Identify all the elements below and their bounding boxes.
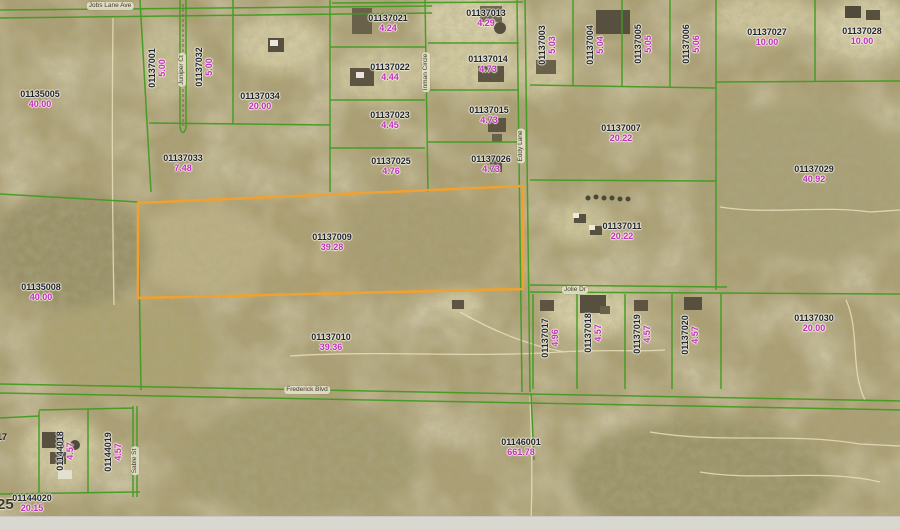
parcel-label-01137020[interactable]: 011370204.57 [681, 315, 701, 355]
parcel-acreage: 4.45 [370, 121, 410, 131]
parcel-label-01135008[interactable]: 0113500840.00 [21, 283, 61, 303]
road-label-juniper-ct: Juniper Ct [178, 53, 186, 87]
parcel-label-01144019[interactable]: 011440194.57 [104, 432, 124, 472]
parcel-label-01137033[interactable]: 011370337.48 [163, 154, 203, 174]
parcel-acreage: 40.00 [20, 100, 60, 110]
parcel-acreage: 4.44 [370, 73, 410, 83]
parcel-label-01137028[interactable]: 0113702810.00 [842, 27, 882, 47]
parcel-acreage: 4.57 [691, 315, 701, 355]
map-bottom-margin [0, 516, 900, 529]
parcel-label-01137019[interactable]: 011370194.57 [633, 314, 653, 354]
parcel-label-01146001[interactable]: 01146001661.78 [501, 438, 541, 458]
parcel-label-01137015[interactable]: 011370154.73 [469, 106, 509, 126]
parcel-acreage: 10.00 [747, 38, 787, 48]
parcel-acreage: 4.29 [466, 19, 506, 29]
parcel-label-01137022[interactable]: 011370224.44 [370, 63, 410, 83]
parcel-label-01135005[interactable]: 0113500540.00 [20, 90, 60, 110]
parcel-acreage: 10.00 [842, 37, 882, 47]
parcel-label-01137001[interactable]: 011370015.00 [148, 48, 168, 88]
parcel-label-01137007[interactable]: 0113700720.22 [601, 124, 641, 144]
parcel-label-01137004[interactable]: 011370045.04 [586, 25, 606, 65]
parcel-acreage: 40.00 [21, 293, 61, 303]
parcel-acreage: 5.00 [205, 47, 215, 87]
parcel-acreage: 20.22 [602, 232, 641, 242]
parcel-acreage: 5.06 [692, 24, 702, 64]
cutoff-parcel-label: 17 [0, 432, 7, 442]
parcel-label-01137003[interactable]: 011370035.03 [538, 25, 558, 65]
parcel-label-01137027[interactable]: 0113702710.00 [747, 28, 787, 48]
parcel-acreage: 4.76 [371, 167, 411, 177]
parcel-acreage: 20.15 [12, 504, 52, 514]
parcel-acreage: 4.96 [551, 318, 561, 358]
parcel-acreage: 4.73 [469, 116, 509, 126]
parcel-acreage: 4.57 [114, 432, 124, 472]
parcel-label-01137023[interactable]: 011370234.45 [370, 111, 410, 131]
parcel-acreage: 20.00 [794, 324, 834, 334]
parcel-acreage: 40.92 [794, 175, 834, 185]
parcel-labels-layer: 0113500540.00011370015.00011370325.00011… [0, 0, 900, 529]
parcel-label-01137018[interactable]: 011370184.57 [584, 313, 604, 353]
parcel-label-01137009[interactable]: 0113700939.28 [312, 233, 352, 253]
gis-map-view: 0113500540.00011370015.00011370325.00011… [0, 0, 900, 529]
parcel-acreage: 4.57 [594, 313, 604, 353]
parcel-acreage: 4.73 [468, 65, 508, 75]
parcel-acreage: 39.28 [312, 243, 352, 253]
parcel-label-01137013[interactable]: 011370134.29 [466, 9, 506, 29]
parcel-label-01137029[interactable]: 0113702940.92 [794, 165, 834, 185]
parcel-acreage: 5.00 [158, 48, 168, 88]
parcel-label-01137005[interactable]: 011370055.05 [634, 24, 654, 64]
parcel-acreage: 4.57 [643, 314, 653, 354]
parcel-label-01137030[interactable]: 0113703020.00 [794, 314, 834, 334]
parcel-label-01137014[interactable]: 011370144.73 [468, 55, 508, 75]
parcel-acreage: 4.73 [471, 165, 511, 175]
parcel-label-01137006[interactable]: 011370065.06 [682, 24, 702, 64]
parcel-acreage: 5.03 [548, 25, 558, 65]
parcel-label-01137010[interactable]: 0113701039.36 [311, 333, 351, 353]
parcel-label-01137017[interactable]: 011370174.96 [541, 318, 561, 358]
parcel-acreage: 4.24 [368, 24, 408, 34]
road-label-sable-st: Sable St [131, 447, 139, 476]
road-label-eddy-lane: Eddy Lane [517, 128, 525, 163]
parcel-acreage: 20.00 [240, 102, 280, 112]
parcel-label-01137032[interactable]: 011370325.00 [195, 47, 215, 87]
parcel-label-01144018[interactable]: 011440184.57 [56, 431, 76, 471]
parcel-acreage: 4.57 [66, 431, 76, 471]
parcel-label-01137026[interactable]: 011370264.73 [471, 155, 511, 175]
parcel-acreage: 7.48 [163, 164, 203, 174]
parcel-acreage: 661.78 [501, 448, 541, 458]
parcel-label-01137034[interactable]: 0113703420.00 [240, 92, 280, 112]
parcel-acreage: 39.36 [311, 343, 351, 353]
parcel-acreage: 5.04 [596, 25, 606, 65]
parcel-acreage: 5.05 [644, 24, 654, 64]
parcel-label-01144020[interactable]: 0114402020.15 [12, 494, 52, 514]
road-label-inman-circle: Inman Circle [422, 52, 430, 92]
parcel-label-01137025[interactable]: 011370254.76 [371, 157, 411, 177]
road-label-frederick-blvd: Frederick Blvd [284, 386, 330, 394]
section-number-label: 25 [0, 496, 14, 513]
road-label-jolie-dr: Jolie Dr [562, 286, 588, 294]
parcel-acreage: 20.22 [601, 134, 641, 144]
parcel-label-01137021[interactable]: 011370214.24 [368, 14, 408, 34]
road-label-jobs-lane-ave: Jobs Lane Ave [87, 2, 134, 10]
parcel-label-01137011[interactable]: 0113701120.22 [602, 222, 641, 242]
